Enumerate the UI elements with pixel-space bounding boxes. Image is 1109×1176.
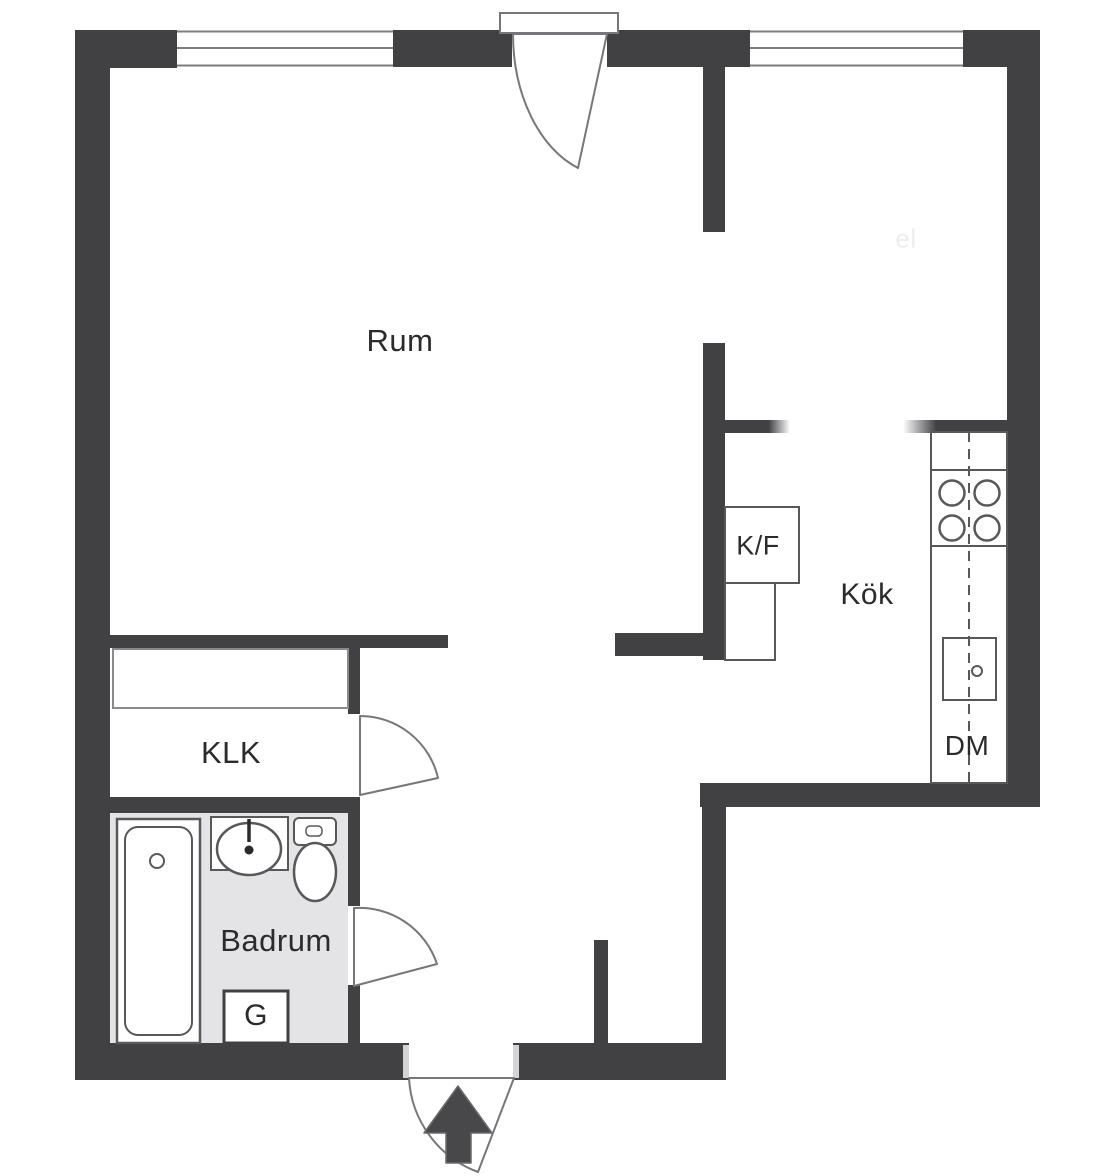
wall-divider-upper xyxy=(703,64,725,232)
wall-badrum-east-upper xyxy=(348,813,360,906)
wall-top-b xyxy=(607,30,750,67)
wall-kitchen-south xyxy=(700,783,1040,807)
entry-jamb-left xyxy=(403,1045,409,1078)
wall-kitchen-inner-left xyxy=(723,420,790,433)
room-label-klk: KLK xyxy=(201,735,261,771)
entry-jamb-right xyxy=(513,1045,519,1078)
toilet-icon xyxy=(294,818,336,901)
closet-shelf xyxy=(113,649,348,708)
bathroom-door-swing xyxy=(354,908,437,986)
wardrobe-label: G xyxy=(244,999,268,1033)
wall-badrum-east-lower xyxy=(348,985,360,1043)
wall-klk-north xyxy=(110,635,448,648)
wall-hall-east xyxy=(702,783,726,1080)
room-label-kok: Kök xyxy=(840,578,893,612)
window-top-left xyxy=(177,30,393,67)
wall-bottom-left xyxy=(75,1043,409,1080)
floor-plan: Rum Kök K/F KLK Badrum G DM el xyxy=(0,0,1109,1176)
wall-hall-north-stub xyxy=(615,633,723,656)
window-top-right xyxy=(750,30,963,67)
wall-left xyxy=(75,30,110,1080)
bathtub-icon xyxy=(117,819,200,1043)
klk-door-swing xyxy=(360,716,438,795)
wall-klk-east-jamb xyxy=(348,648,360,714)
watermark-text: el xyxy=(895,224,916,255)
balcony-door-frame xyxy=(500,13,618,33)
dishwasher-knob xyxy=(972,666,982,676)
fridge-freezer-label: K/F xyxy=(736,531,780,562)
wall-entry-stub xyxy=(594,940,608,1043)
dishwasher-label: DM xyxy=(945,730,990,762)
wall-top-a xyxy=(393,30,512,67)
room-label-rum: Rum xyxy=(367,323,434,359)
wall-divider-lower xyxy=(703,343,725,660)
wall-bottom-right xyxy=(513,1043,726,1080)
wall-right xyxy=(1007,30,1040,807)
room-label-badrum: Badrum xyxy=(220,923,332,959)
wall-klk-badrum xyxy=(110,797,360,813)
sink-icon xyxy=(211,817,288,875)
balcony-door-swing xyxy=(513,34,607,168)
floor-plan-drawing xyxy=(0,0,1109,1176)
